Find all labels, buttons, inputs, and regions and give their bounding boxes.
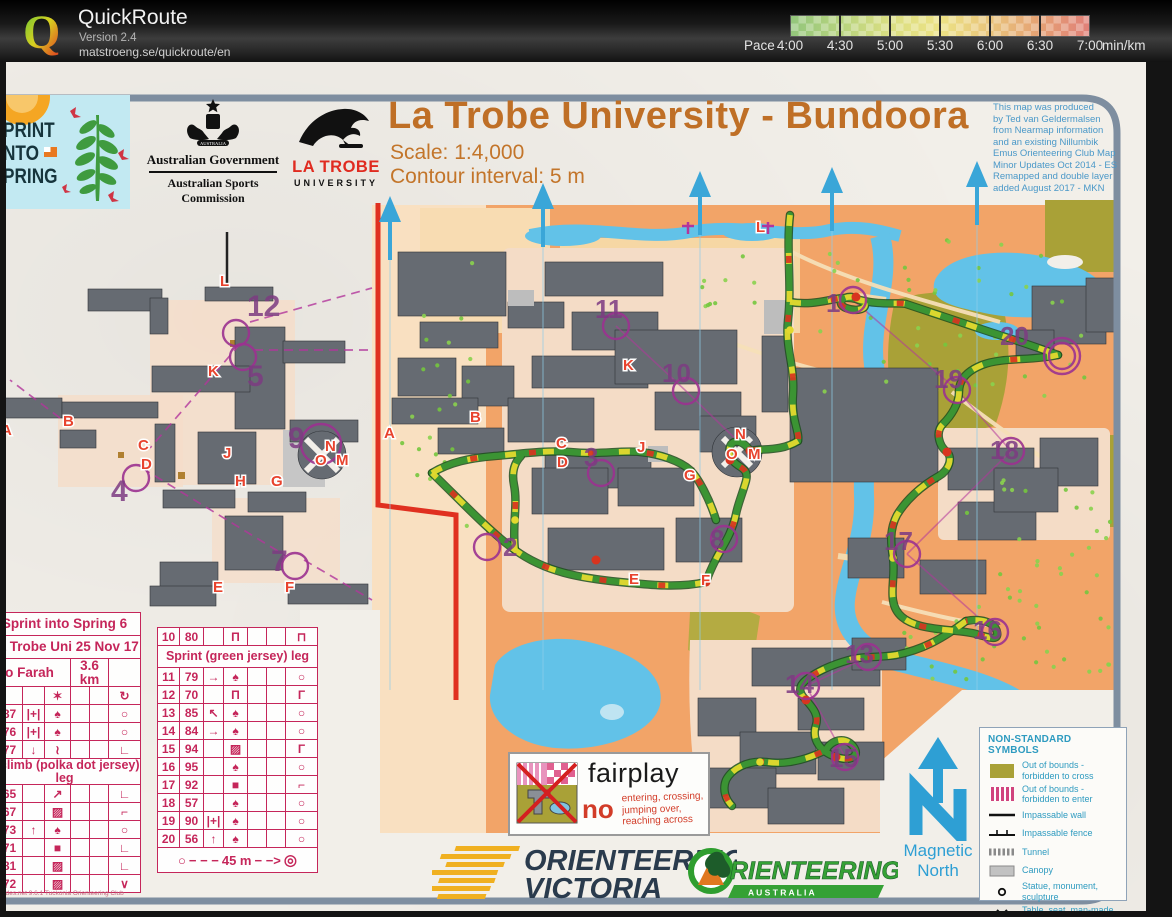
card-cell: ↻ [109, 687, 141, 705]
legend-item-label: Tunnel [1022, 847, 1049, 858]
card-row: 1270ΠΓ [158, 686, 318, 704]
card-row: 1792■⌐ [158, 776, 318, 794]
card-cell [248, 686, 267, 704]
orienteering-australia-logo: RIENTEERING A U S T R A L I A [688, 843, 898, 905]
card-row: 87|+|♠○ [0, 705, 141, 723]
control-number-20: 20 [1000, 321, 1029, 351]
card-cell: 20 [158, 830, 180, 848]
control-number-12: 12 [247, 290, 280, 323]
card-cell: 56 [180, 830, 204, 848]
card-row: 1857♠○ [158, 794, 318, 812]
map-scale: Scale: 1:4,000 [390, 141, 524, 165]
card-cell: ♠ [224, 830, 248, 848]
control-number-14: 14 [785, 669, 814, 699]
lt-line2: UNIVERSITY [292, 178, 380, 188]
card-cell [71, 857, 90, 875]
map-contour-interval: Contour interval: 5 m [390, 165, 585, 189]
credit-line: from Nearmap information [993, 125, 1125, 137]
map-letter-F: F [285, 579, 294, 596]
card-row: 73↑♠○ [0, 821, 141, 839]
ag-divider [149, 171, 277, 173]
pace-tick-mark [889, 15, 891, 37]
map-letter-C: C [556, 435, 567, 452]
map-letter-J: J [637, 439, 645, 456]
card-cell: ⌐ [109, 803, 141, 821]
map-letter-G: G [684, 467, 696, 484]
card-cell: 12 [158, 686, 180, 704]
card-cell [23, 803, 45, 821]
control-number-11: 11 [595, 294, 623, 324]
card-cell: ⊓ [286, 628, 318, 646]
card-cell: 10 [158, 628, 180, 646]
legend-item: Impassable wall [988, 807, 1120, 823]
map-letter-G: G [271, 473, 283, 490]
control-number-15: 15 [829, 743, 858, 773]
card-cell [267, 812, 286, 830]
legend-item-label: Canopy [1022, 865, 1053, 876]
legend-item-label: Impassable fence [1022, 828, 1093, 839]
legend-title: NON-STANDARD SYMBOLS [988, 734, 1120, 756]
card-cell [90, 741, 109, 759]
map-letter-L: L [220, 273, 229, 290]
card-row: 1484→♠○ [158, 722, 318, 740]
card-cell [204, 758, 224, 776]
map-letter-O: O [726, 446, 738, 463]
control-number-3: 3 [584, 442, 598, 472]
card-cell: 95 [180, 758, 204, 776]
card-cell: ♠ [45, 705, 71, 723]
card-cell [267, 686, 286, 704]
card-cell: 84 [180, 722, 204, 740]
olive-swatch-icon [988, 763, 1016, 779]
pace-tick-label: 6:00 [977, 38, 1003, 53]
map-letter-K: K [623, 357, 634, 374]
card-cell: ↑ [23, 821, 45, 839]
credit-line: Minor Updates Oct 2014 - ES [993, 160, 1125, 172]
card-cell: |+| [23, 705, 45, 723]
credit-line: and an existing Nillumbik [993, 137, 1125, 149]
crest-banner-text: AUSTRALIA [200, 141, 227, 146]
card-cell: |+| [204, 812, 224, 830]
map-letter-J: J [223, 445, 231, 462]
legend-items: Out of bounds -forbidden to crossOut of … [988, 760, 1120, 917]
card-cell [90, 821, 109, 839]
card-cell: ♠ [224, 812, 248, 830]
card-cell: ↓ [23, 741, 45, 759]
card-cell [204, 776, 224, 794]
card-cell: ⌐ [286, 776, 318, 794]
oa-art: RIENTEERING A U S T R A L I A [688, 843, 898, 905]
card-cell [248, 812, 267, 830]
map-letter-M: M [336, 452, 349, 469]
control-card-hill-climb: Sprint into Spring 6La Trobe Uni 25 Nov … [0, 612, 141, 893]
card-cell: ○ [286, 758, 318, 776]
card-cell: ↑ [204, 830, 224, 848]
fence-swatch-icon [988, 826, 1016, 842]
card-cell: ♠ [224, 704, 248, 722]
map-letter-E: E [213, 579, 223, 596]
card-cell: ♠ [224, 758, 248, 776]
pace-tick-mark [839, 15, 841, 37]
card-cell [90, 857, 109, 875]
magnetic-north-line2: North [898, 861, 978, 881]
map-letter-E: E [629, 571, 639, 588]
non-standard-symbols-legend: NON-STANDARD SYMBOLS Out of bounds -forb… [979, 727, 1127, 901]
legend-item: Statue, monument, sculpture [988, 881, 1120, 902]
card-cell [90, 705, 109, 723]
card-cell: ▨ [224, 740, 248, 758]
card-cell: 17 [158, 776, 180, 794]
quickroute-logo-icon: Q [20, 5, 72, 57]
card-cell [267, 830, 286, 848]
card-cell [71, 723, 90, 741]
card-cell: ○ [286, 830, 318, 848]
map-letter-H: H [235, 473, 246, 490]
legend-item: Canopy [988, 863, 1120, 879]
sis-line2: NTO [3, 142, 39, 166]
map-letter-N: N [735, 426, 746, 443]
svg-text:Q: Q [23, 6, 60, 57]
pace-tick-mark [989, 15, 991, 37]
card-cell: ♠ [224, 722, 248, 740]
pace-tick-label: 7:00 [1077, 38, 1103, 53]
control-number-2: 2 [503, 532, 517, 562]
control-number-4: 4 [111, 475, 128, 508]
card-cell: ○ [286, 722, 318, 740]
map-title: La Trobe University - Bundoora [388, 95, 969, 138]
title-bar: Q QuickRoute Version 2.4 matstroeng.se/q… [0, 0, 1172, 62]
card-cell [71, 785, 90, 803]
legend-item: Out of bounds -forbidden to enter [988, 784, 1120, 805]
card-cell: ○ [286, 812, 318, 830]
map-letter-D: D [557, 454, 568, 471]
card-row: 1179→♠○ [158, 668, 318, 686]
pace-tick-label: 4:30 [827, 38, 853, 53]
card-cell: ✶ [45, 687, 71, 705]
magnetic-north-icon [903, 737, 973, 841]
card-cell: 3.6 km [71, 659, 109, 687]
control-number-13: 13 [845, 639, 874, 669]
card-cell: 94 [180, 740, 204, 758]
magnetic-north-line1: Magnetic [898, 841, 978, 861]
card-cell [23, 785, 45, 803]
pace-tick-label: 6:30 [1027, 38, 1053, 53]
australian-government-logo: AUSTRALIA Australian Government Australi… [138, 98, 288, 206]
card-row: ll climb (polka dot jersey) leg [0, 759, 141, 785]
map-letter-K: K [208, 363, 219, 380]
card-cell: ○ [109, 723, 141, 741]
card-cell [267, 668, 286, 686]
ag-line2: Australian Sports Commission [138, 176, 288, 206]
legend-item: Out of bounds -forbidden to cross [988, 760, 1120, 781]
card-left-footer: ndes.net 9.6.1 Tuckonia Orienteering Clu… [2, 890, 124, 897]
card-row: 1695♠○ [158, 758, 318, 776]
card-cell: Γ [286, 740, 318, 758]
card-cell [267, 628, 286, 646]
card-row: 77↓≀∟ [0, 741, 141, 759]
app-url[interactable]: matstroeng.se/quickroute/en [79, 45, 230, 59]
card-cell [90, 839, 109, 857]
card-cell: → [204, 668, 224, 686]
card-cell [204, 628, 224, 646]
card-cell: ♠ [45, 821, 71, 839]
card-cell: ♠ [224, 794, 248, 812]
card-cell [267, 758, 286, 776]
map-letter-B: B [470, 409, 481, 426]
card-row: 71■∟ [0, 839, 141, 857]
card-cell [248, 668, 267, 686]
screen-edge-left [0, 62, 6, 917]
legend-item-label: Out of bounds -forbidden to enter [1022, 784, 1093, 805]
card-cell: 57 [180, 794, 204, 812]
pace-tick-label: 5:30 [927, 38, 953, 53]
map-letter-M: M [748, 446, 761, 463]
map-credits: This map was producedby Ted van Gelderma… [993, 102, 1125, 194]
legend-item: Tunnel [988, 844, 1120, 860]
map-letter-C: C [138, 437, 149, 454]
card-cell: 85 [180, 704, 204, 722]
control-number-5: 5 [247, 360, 264, 393]
statue-swatch-icon [988, 884, 1016, 900]
card-row: 1385↖♠○ [158, 704, 318, 722]
card-cell: 80 [180, 628, 204, 646]
card-row: 81▨∟ [0, 857, 141, 875]
tunnel-swatch-icon [988, 844, 1016, 860]
legend-item-label: Statue, monument, sculpture [1022, 881, 1120, 902]
card-cell [248, 776, 267, 794]
card-cell [71, 839, 90, 857]
card-row: 1594▨Γ [158, 740, 318, 758]
card-cell: 13 [158, 704, 180, 722]
card-row: Sprint into Spring 6 [0, 613, 141, 636]
screen-edge-right [1146, 62, 1172, 917]
card-cell: ○ [286, 704, 318, 722]
control-number-16: 16 [973, 615, 1002, 645]
credit-line: This map was produced [993, 102, 1125, 114]
card-cell: ▨ [45, 803, 71, 821]
card-cell: 18 [158, 794, 180, 812]
lt-line1: LA TROBE [292, 158, 380, 177]
card-head: ll climb (polka dot jersey) leg [0, 759, 141, 785]
app-version: Version 2.4 [79, 32, 137, 44]
card-title: Sprint into Spring 6 [0, 613, 141, 636]
card-row: Sprint (green jersey) leg [158, 646, 318, 668]
card-row: o Farah3.6 km [0, 659, 141, 687]
card-row: 76|+|♠○ [0, 723, 141, 741]
pace-tick-mark [1039, 15, 1041, 37]
card-cell: |+| [23, 723, 45, 741]
card-cell: Π [224, 628, 248, 646]
card-cell [248, 830, 267, 848]
card-cell [248, 704, 267, 722]
card-cell: 19 [158, 812, 180, 830]
map-letter-A: A [384, 425, 395, 442]
ag-line1: Australian Government [138, 152, 288, 168]
card-cell: ∟ [109, 839, 141, 857]
card-cell: → [204, 722, 224, 740]
app-title: QuickRoute [78, 6, 188, 30]
pace-label: Pace [744, 38, 775, 53]
legend-item-label: Out of bounds -forbidden to cross [1022, 760, 1094, 781]
card-cell: ∟ [109, 785, 141, 803]
quickroute-window: 123457891011121314151617181920LABKCDJNOM… [0, 0, 1172, 917]
card-cell: ○ [286, 794, 318, 812]
wall-swatch-icon [988, 807, 1016, 823]
card-row: La Trobe Uni 25 Nov 17 [0, 636, 141, 659]
card-cell [267, 704, 286, 722]
card-cell: ■ [224, 776, 248, 794]
card-cell [90, 723, 109, 741]
control-number-10: 10 [662, 358, 691, 388]
pace-tick-label: 5:00 [877, 38, 903, 53]
card-cell [248, 628, 267, 646]
card-cell: 16 [158, 758, 180, 776]
card-cell [267, 722, 286, 740]
card-cell: ■ [45, 839, 71, 857]
card-cell [23, 839, 45, 857]
card-cell: 11 [158, 668, 180, 686]
card-cell [71, 803, 90, 821]
card-cell: ∟ [109, 741, 141, 759]
card-cell [267, 794, 286, 812]
card-cell [109, 659, 141, 687]
fairplay-notice: fairplay no entering, crossing, jumping … [508, 752, 710, 836]
card-row: 2056↑♠○ [158, 830, 318, 848]
card-cell [71, 821, 90, 839]
card-cell: ○ [109, 705, 141, 723]
pace-tick-mark [939, 15, 941, 37]
control-number-19: 19 [934, 364, 963, 394]
card-cell: ↗ [45, 785, 71, 803]
map-letter-B: B [63, 413, 74, 430]
credit-line: Emus Orienteering Club Map [993, 148, 1125, 160]
stripes-swatch-icon [988, 786, 1016, 802]
map-letter-F: F [701, 572, 710, 589]
card-cell: o Farah [0, 659, 71, 687]
card-cell [23, 857, 45, 875]
pace-tick-label: 4:00 [777, 38, 803, 53]
control-number-7: 7 [271, 545, 288, 578]
card-cell: ▨ [45, 857, 71, 875]
card-cell [204, 686, 224, 704]
card-cell: ≀ [45, 741, 71, 759]
oa-sub-text: A U S T R A L I A [748, 888, 815, 898]
card-cell [90, 687, 109, 705]
screen-edge-bottom [0, 911, 1172, 917]
card-cell [71, 741, 90, 759]
control-number-8: 8 [710, 524, 724, 554]
card-cell [248, 758, 267, 776]
card-cell [204, 740, 224, 758]
card-cell [90, 803, 109, 821]
oa-main-text: RIENTEERING [730, 857, 898, 885]
fairplay-title: fairplay [588, 758, 679, 789]
card-cell: 79 [180, 668, 204, 686]
card-cell: Γ [286, 686, 318, 704]
sis-line3: PRING [3, 165, 58, 189]
fairplay-rules: entering, crossing, jumping over, reachi… [621, 791, 704, 828]
magnetic-north-mark: Magnetic North [898, 737, 978, 897]
legend-item: Impassable fence [988, 826, 1120, 842]
card-cell [267, 740, 286, 758]
card-cell: 70 [180, 686, 204, 704]
sprint-into-spring-logo: PRINT NTO PRING [0, 95, 130, 209]
card-cell [204, 794, 224, 812]
card-row: 67▨⌐ [0, 803, 141, 821]
map-letter-D: D [141, 456, 152, 473]
card-cell: ♠ [224, 668, 248, 686]
card-row: ✶↻ [0, 687, 141, 705]
ov-line2-text: VICTORIA [524, 873, 662, 905]
card-cell [90, 785, 109, 803]
control-number-9: 9 [288, 422, 305, 455]
card-cell [248, 722, 267, 740]
eagle-icon [293, 102, 379, 158]
card-head: Sprint (green jersey) leg [158, 646, 318, 668]
la-trobe-logo: LA TROBE UNIVERSITY [292, 102, 380, 202]
card-cell [267, 776, 286, 794]
card-cell [248, 740, 267, 758]
map-letter-O: O [315, 452, 327, 469]
credit-line: added August 2017 - MKN [993, 183, 1125, 195]
card-cell: 14 [158, 722, 180, 740]
card-cell [248, 794, 267, 812]
credit-line: Remapped and double layer [993, 171, 1125, 183]
fairplay-icon [516, 762, 578, 824]
card-cell: ○ [109, 821, 141, 839]
card-cell: ↖ [204, 704, 224, 722]
card-cell: ♠ [45, 723, 71, 741]
card-cell: 90 [180, 812, 204, 830]
fairplay-no: no [582, 794, 614, 825]
card-cell [71, 705, 90, 723]
coat-of-arms-icon: AUSTRALIA [153, 98, 273, 150]
card-cell: ○ [286, 668, 318, 686]
card-cell: 92 [180, 776, 204, 794]
card-title: La Trobe Uni 25 Nov 17 [0, 636, 141, 659]
map-letter-L: L [756, 219, 765, 236]
sis-line1: PRINT [3, 119, 55, 143]
card-row: 65↗∟ [0, 785, 141, 803]
control-card-sprint: 1080Π⊓Sprint (green jersey) leg1179→♠○12… [157, 627, 318, 873]
card-cell [23, 687, 45, 705]
card-cell: Π [224, 686, 248, 704]
card-cell: 15 [158, 740, 180, 758]
control-number-17: 17 [884, 526, 913, 556]
canopy-swatch-icon [988, 863, 1016, 879]
legend-item-label: Impassable wall [1022, 810, 1086, 821]
card-cell [71, 687, 90, 705]
card-row: 1080Π⊓ [158, 628, 318, 646]
control-number-1: 1 [826, 288, 840, 318]
control-number-18: 18 [990, 435, 1019, 465]
card-scale-row: ○− − −45 m− −>◎ [158, 848, 318, 873]
pace-unit: min/km [1102, 38, 1146, 53]
card-cell: ∟ [109, 857, 141, 875]
card-row: 1990|+|♠○ [158, 812, 318, 830]
credit-line: by Ted van Geldermalsen [993, 114, 1125, 126]
